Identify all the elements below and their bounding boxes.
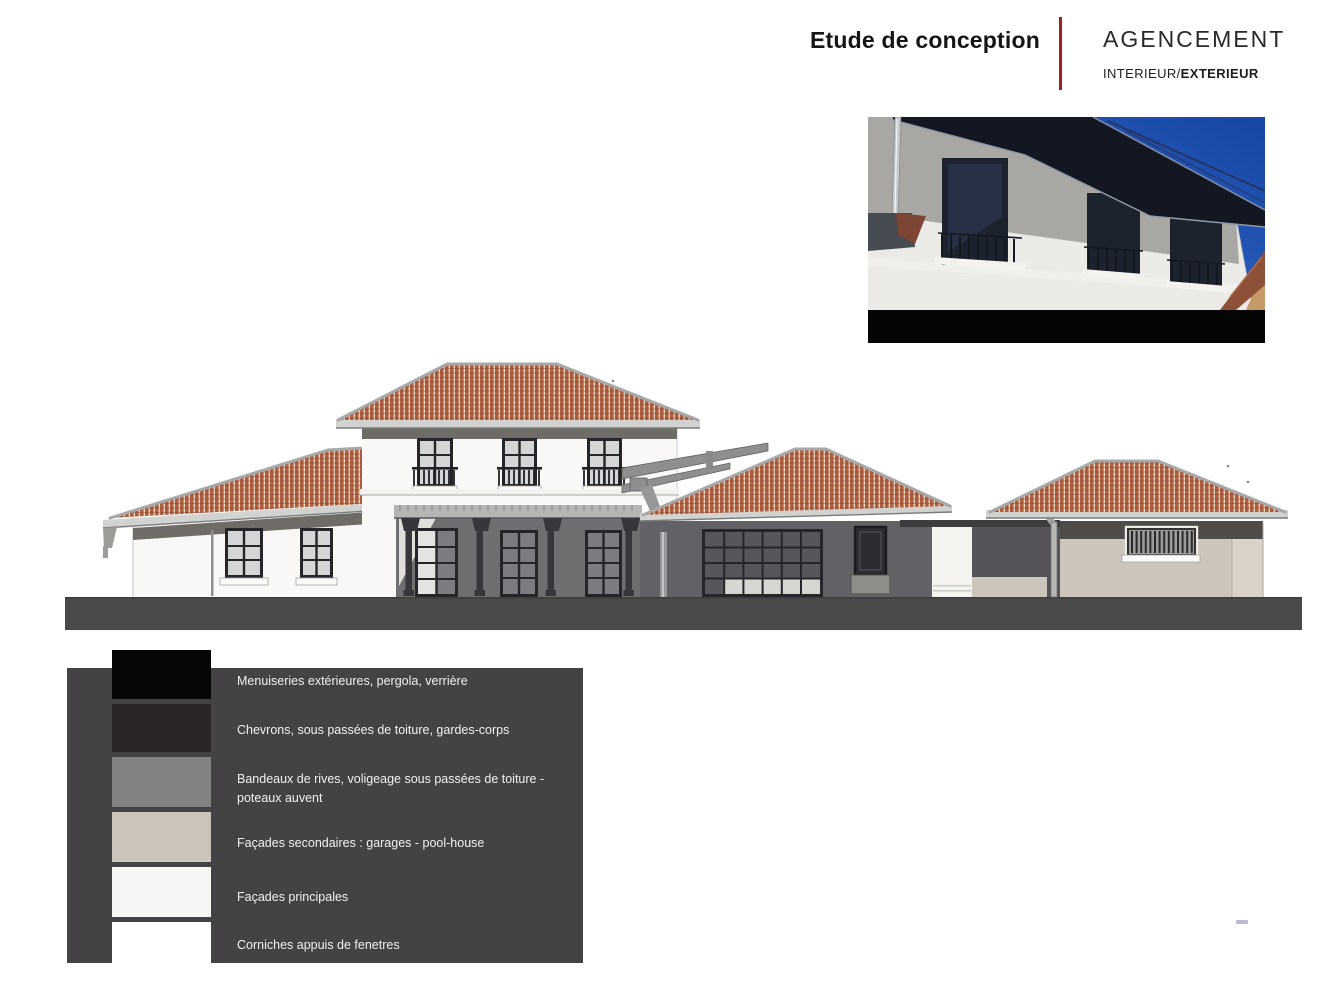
- window: [220, 528, 268, 585]
- downpipe: [211, 530, 214, 596]
- legend-label: Façades secondaires : garages - pool-hou…: [237, 834, 559, 853]
- entry-door: [851, 527, 890, 594]
- legend-label: Bandeaux de rives, voligeage sous passée…: [237, 770, 559, 808]
- legend-swatch-facades-principales: [112, 867, 211, 917]
- barred-window: [1122, 527, 1200, 562]
- legend-swatch-corniches: [112, 922, 211, 970]
- french-door: [585, 530, 622, 597]
- legend-swatch-menuiseries: [112, 650, 211, 699]
- presentation-page: Etude de conception AGENCEMENT INTERIEUR…: [0, 0, 1344, 1008]
- artifact-dash: [1236, 920, 1248, 924]
- legend-swatch-bandeaux: [112, 757, 211, 807]
- window-wall: [702, 529, 823, 597]
- header-divider: [1059, 17, 1062, 90]
- legend-swatch-facades-secondaires: [112, 812, 211, 862]
- legend-swatch-chevrons: [112, 704, 211, 752]
- facade-photo-inset: [868, 117, 1265, 343]
- window: [296, 528, 337, 585]
- legend-label: Menuiseries extérieures, pergola, verriè…: [237, 672, 559, 691]
- window-with-railing: [497, 438, 542, 492]
- brand-subtitle-bold: EXTERIEUR: [1181, 66, 1259, 81]
- french-door: [415, 528, 458, 597]
- brand-subtitle-regular: INTERIEUR/: [1103, 66, 1181, 81]
- legend-label: Façades principales: [237, 888, 559, 907]
- brand-subtitle: INTERIEUR/EXTERIEUR: [1103, 66, 1259, 81]
- photo-window-3: [1166, 215, 1228, 293]
- page-title: Etude de conception: [778, 27, 1040, 54]
- flat-canopy: [900, 520, 1060, 527]
- porch: [394, 505, 642, 597]
- downpipe: [660, 532, 667, 597]
- left-wing: [103, 446, 398, 597]
- brand-name: AGENCEMENT: [1103, 26, 1285, 53]
- legend-label: Chevrons, sous passées de toiture, garde…: [237, 721, 559, 740]
- pergola-slab: [394, 505, 642, 518]
- french-door: [500, 530, 538, 597]
- legend-label: Corniches appuis de fenetres: [237, 936, 559, 955]
- photo-bottom-band: [868, 310, 1265, 343]
- elevation-drawing: [65, 355, 1305, 635]
- ground-strip: [65, 597, 1302, 630]
- gutter-tip: [103, 527, 117, 548]
- window-with-railing: [582, 438, 627, 492]
- window-with-railing: [412, 438, 458, 492]
